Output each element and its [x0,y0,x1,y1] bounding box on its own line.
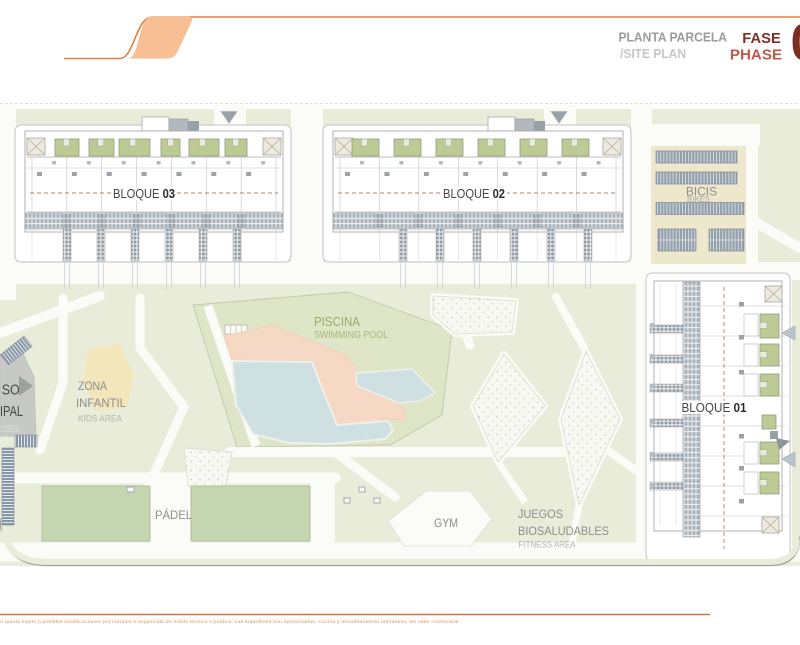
svg-text:FASE: FASE [742,30,781,47]
svg-text:GYM: GYM [434,516,458,530]
svg-text:PHASE: PHASE [730,47,782,64]
svg-text:SO: SO [2,382,20,399]
svg-text:ZONA: ZONA [78,381,107,393]
svg-text:PÁDEL: PÁDEL [155,507,192,522]
svg-text:PISCINA: PISCINA [314,315,361,329]
svg-text:BLOQUE 03: BLOQUE 03 [113,187,175,201]
svg-text:02: 02 [791,14,800,72]
svg-text:INFANTIL: INFANTIL [76,398,127,410]
svg-text:BLOQUE 01: BLOQUE 01 [682,401,747,415]
svg-text:JUEGOS: JUEGOS [518,507,563,521]
svg-text:PLANTA PARCELA: PLANTA PARCELA [619,30,728,45]
svg-text:CCESS: CCESS [0,424,20,435]
svg-text:/SITE PLAN: /SITE PLAN [620,46,686,61]
svg-text:IPAL: IPAL [0,403,23,420]
svg-text:BIOSALUDABLES: BIOSALUDABLES [518,524,609,538]
svg-text:BIKES: BIKES [687,194,710,204]
svg-text:BLOQUE 02: BLOQUE 02 [443,187,505,201]
svg-text:FITNESS AREA: FITNESS AREA [519,540,576,550]
svg-text:SWIMMING POOL: SWIMMING POOL [314,330,388,341]
svg-text:o queda sujeto a posibles modi: o queda sujeto a posibles modificaciones… [0,619,460,624]
svg-text:KIDS AREA: KIDS AREA [78,414,122,424]
